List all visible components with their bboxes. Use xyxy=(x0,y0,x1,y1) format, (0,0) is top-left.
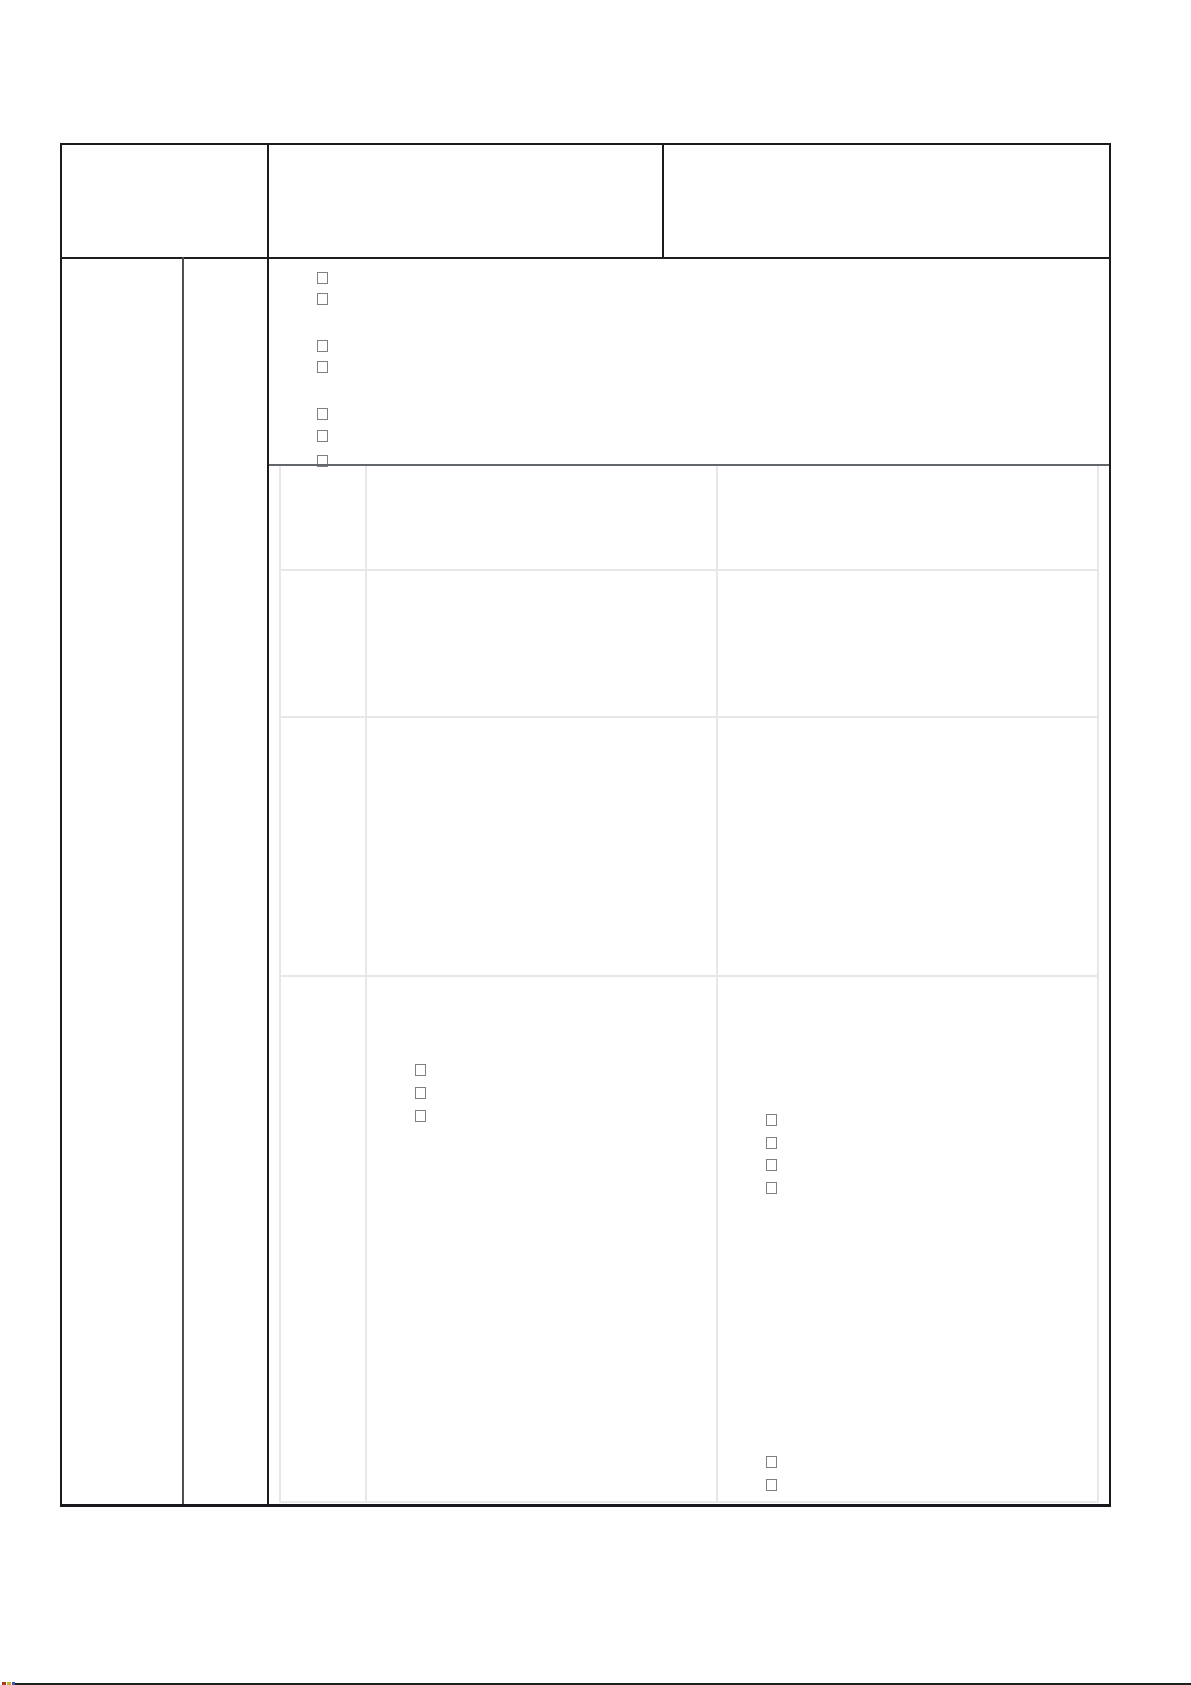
main-column-divider xyxy=(267,143,269,1504)
checkbox-top-1[interactable] xyxy=(317,272,328,284)
checkbox-mid-2[interactable] xyxy=(415,1087,426,1099)
inner-grid-hline-1 xyxy=(279,569,1099,571)
inner-grid-hline-3 xyxy=(279,975,1099,977)
header-bottom-rule xyxy=(60,257,1111,259)
inner-grid-left-edge xyxy=(279,466,281,1503)
checkbox-top-5[interactable] xyxy=(317,408,328,420)
blank-form-page xyxy=(0,0,1191,1685)
inner-grid-hline-2 xyxy=(279,716,1099,718)
inner-grid-vline-2 xyxy=(716,466,718,1503)
checkbox-top-4[interactable] xyxy=(317,361,328,373)
inner-grid-right-edge xyxy=(1097,466,1099,1503)
outer-border-top xyxy=(60,143,1111,145)
checkbox-right-2[interactable] xyxy=(766,1137,777,1149)
checkbox-mid-1[interactable] xyxy=(415,1064,426,1076)
outer-border-bottom xyxy=(60,1504,1111,1507)
inner-grid-vline-1 xyxy=(365,466,367,1503)
checkbox-right-4[interactable] xyxy=(766,1182,777,1194)
outer-border-right xyxy=(1109,143,1111,1507)
header-column-divider xyxy=(662,143,664,257)
checkbox-top-2[interactable] xyxy=(317,293,328,305)
checkbox-right-3[interactable] xyxy=(766,1159,777,1171)
checkbox-right-1[interactable] xyxy=(766,1114,777,1126)
left-subcolumn-divider xyxy=(182,257,184,1504)
checkbox-top-3[interactable] xyxy=(317,340,328,352)
checkbox-section-divider xyxy=(269,464,1109,466)
checkbox-right-lower-1[interactable] xyxy=(766,1456,777,1468)
checkbox-mid-3[interactable] xyxy=(415,1110,426,1122)
checkbox-right-lower-2[interactable] xyxy=(766,1479,777,1491)
inner-grid-bottom-edge xyxy=(279,1501,1099,1503)
outer-border-left xyxy=(60,143,62,1507)
checkbox-top-6[interactable] xyxy=(317,430,328,442)
